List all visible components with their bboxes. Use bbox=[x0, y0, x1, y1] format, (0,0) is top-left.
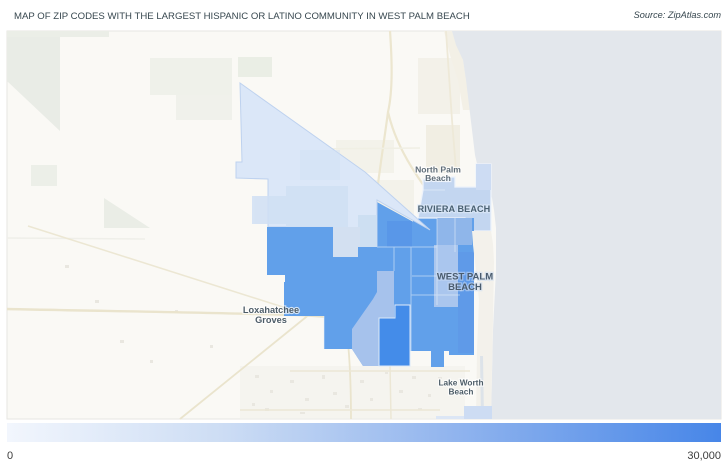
svg-text:Beach: Beach bbox=[425, 173, 451, 183]
svg-text:Loxahatchee: Loxahatchee bbox=[243, 305, 299, 315]
svg-text:MAP OF ZIP CODES WITH THE LARG: MAP OF ZIP CODES WITH THE LARGEST HISPAN… bbox=[14, 11, 470, 22]
svg-text:Source: ZipAtlas.com: Source: ZipAtlas.com bbox=[634, 10, 722, 20]
svg-text:0: 0 bbox=[7, 450, 13, 462]
svg-text:Beach: Beach bbox=[449, 387, 474, 397]
svg-text:RIVIERA BEACH: RIVIERA BEACH bbox=[418, 204, 491, 214]
svg-text:BEACH: BEACH bbox=[448, 282, 482, 293]
svg-text:30,000: 30,000 bbox=[687, 450, 721, 462]
svg-text:WEST PALM: WEST PALM bbox=[437, 272, 493, 283]
svg-text:Groves: Groves bbox=[255, 315, 287, 325]
